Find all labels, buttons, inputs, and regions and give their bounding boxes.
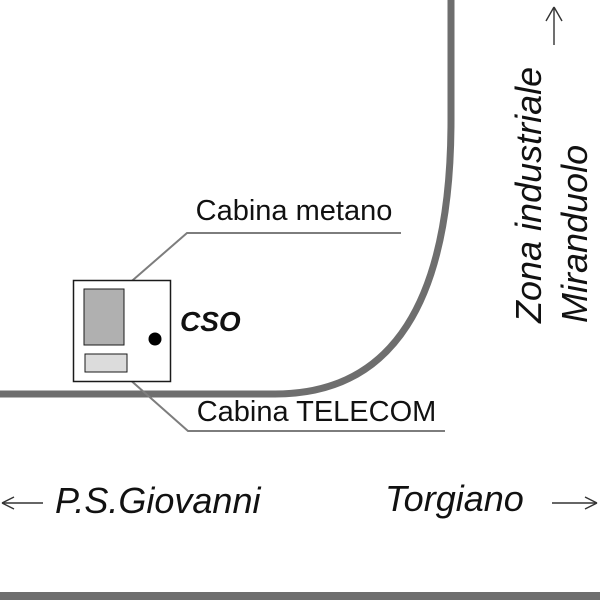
arrow-up-icon (546, 7, 562, 45)
torgiano-label: Torgiano (385, 478, 524, 519)
arrow-left-icon (2, 497, 43, 509)
cso-marker-dot (149, 333, 162, 346)
cabina-telecom-label: Cabina TELECOM (188, 396, 445, 429)
ps-giovanni-label: P.S.Giovanni (55, 480, 260, 521)
arrow-right-icon (552, 497, 597, 509)
cabina-metano-shape (84, 289, 124, 345)
zona-industriale-label: Zona industriale Miranduolo (506, 63, 598, 323)
cabina-telecom-shape (85, 354, 127, 372)
cabina-metano-label: Cabina metano (187, 195, 401, 228)
zona-industriale-line2: Miranduolo (552, 63, 598, 323)
zona-industriale-line1: Zona industriale (506, 63, 552, 323)
road-map: Cabina metano Cabina TELECOM CSO Zona in… (0, 0, 600, 600)
cso-label: CSO (180, 306, 241, 338)
